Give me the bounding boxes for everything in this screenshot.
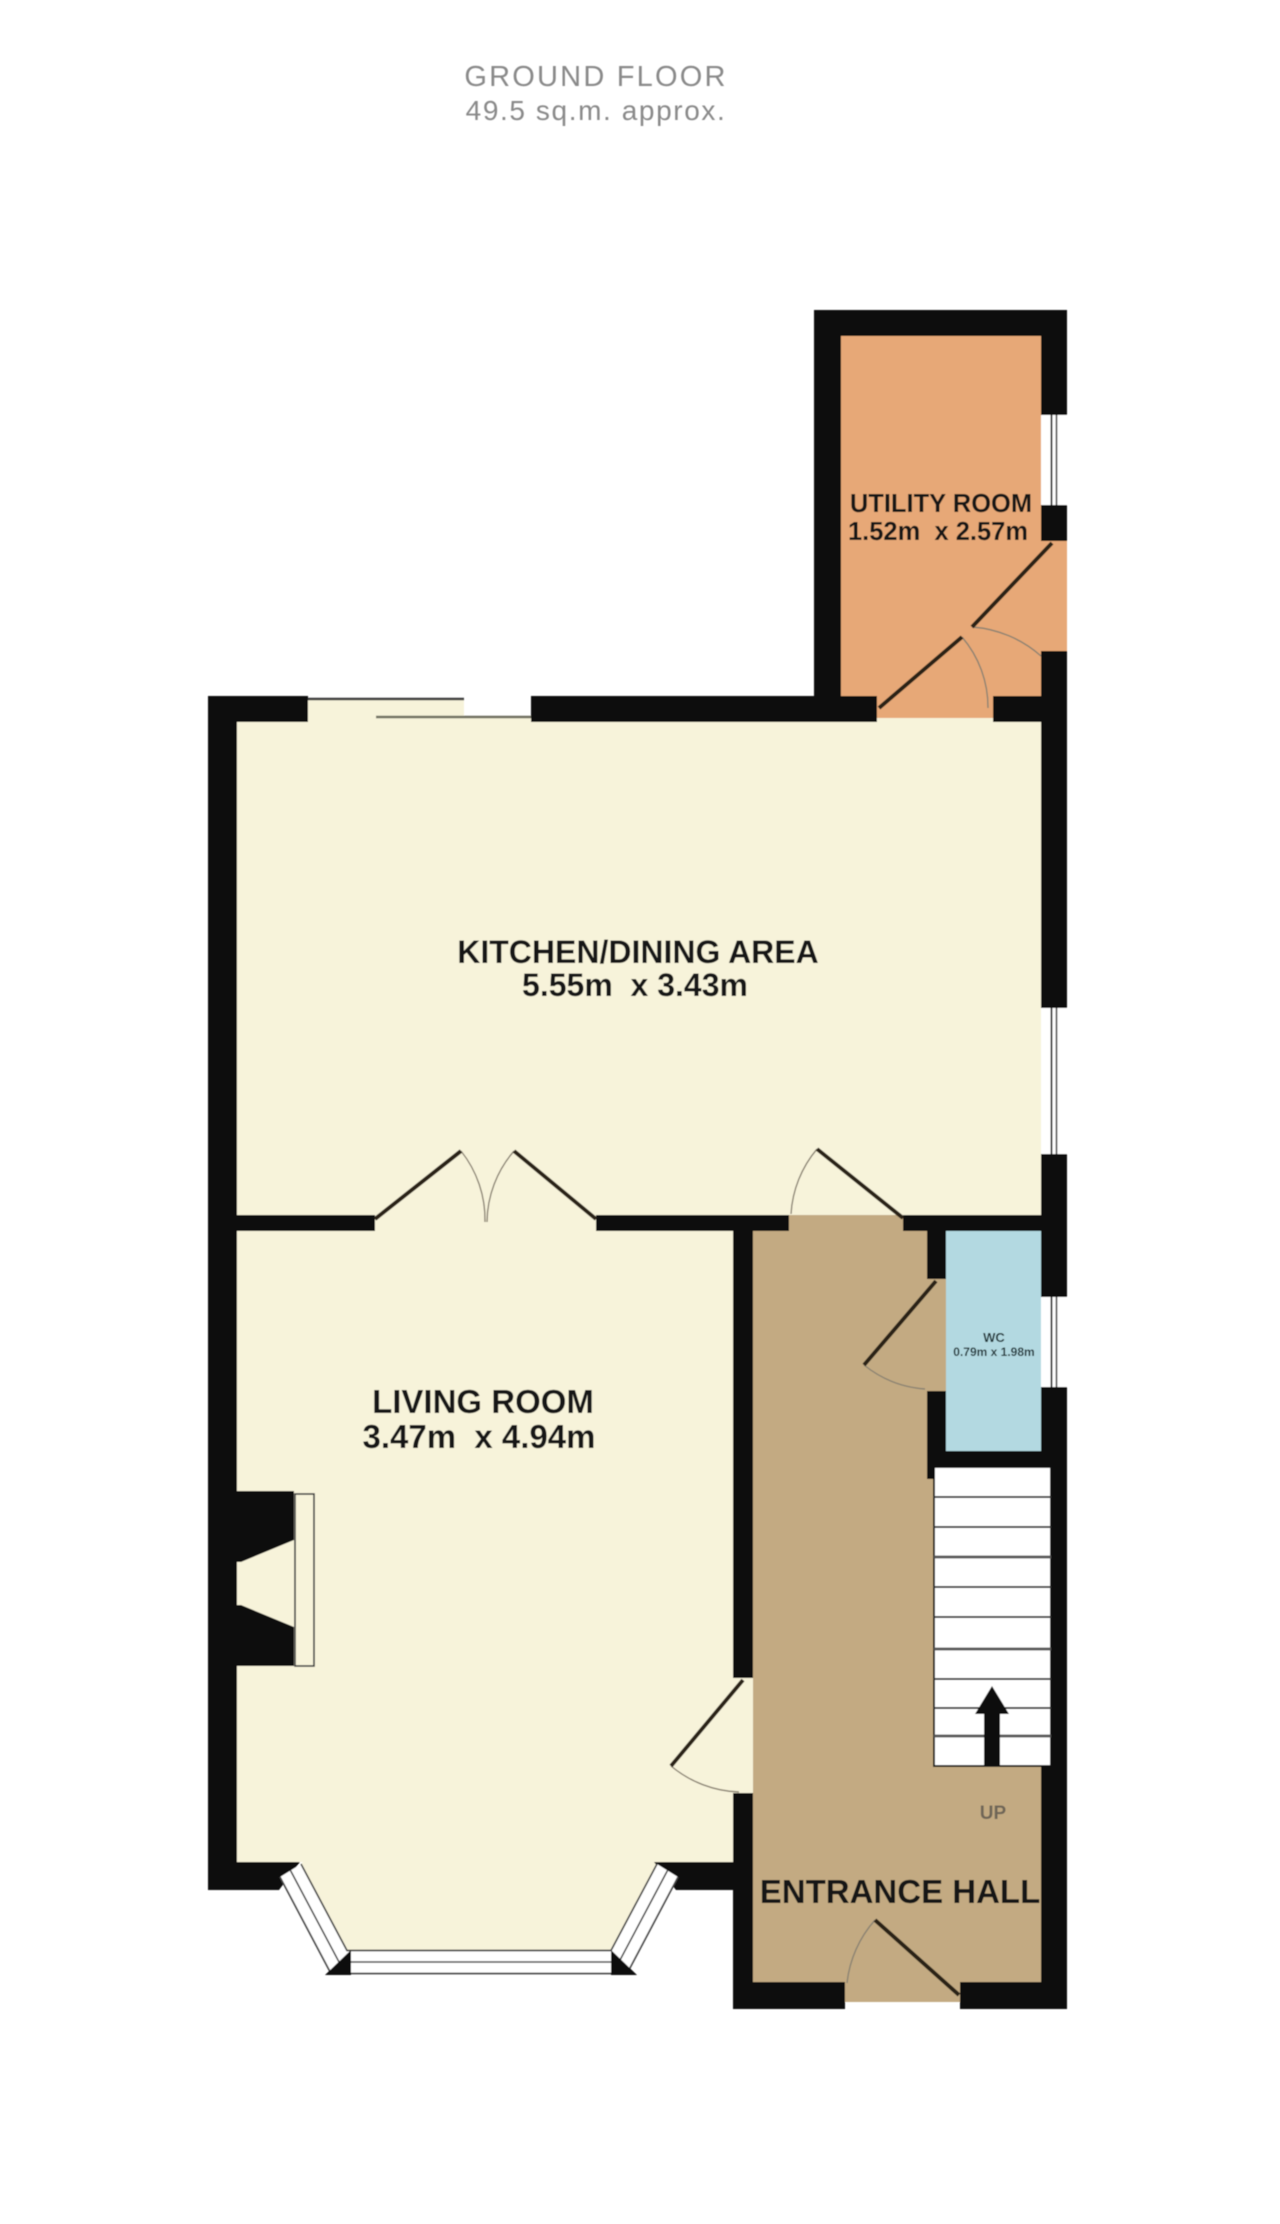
svg-text:1.52m x 2.57m: 1.52m x 2.57m [848,518,1028,546]
svg-text:LIVING ROOM: LIVING ROOM [372,1383,594,1420]
svg-text:UTILITY ROOM: UTILITY ROOM [850,490,1032,518]
svg-text:GROUND FLOOR: GROUND FLOOR [464,61,727,93]
svg-text:3.47m x 4.94m: 3.47m x 4.94m [363,1418,596,1455]
svg-text:5.55m x 3.43m: 5.55m x 3.43m [522,967,748,1003]
svg-text:49.5 sq.m. approx.: 49.5 sq.m. approx. [466,95,727,126]
svg-text:UP: UP [980,1803,1007,1824]
svg-text:0.79m x 1.98m: 0.79m x 1.98m [953,1345,1034,1359]
svg-text:KITCHEN/DINING AREA: KITCHEN/DINING AREA [457,934,818,970]
svg-text:ENTRANCE HALL: ENTRANCE HALL [760,1873,1040,1910]
svg-text:WC: WC [983,1330,1005,1345]
